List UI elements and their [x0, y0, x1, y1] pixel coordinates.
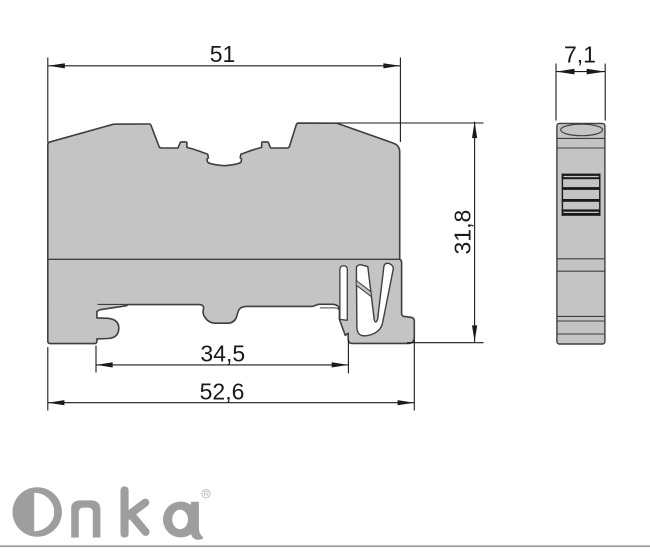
svg-text:34,5: 34,5 [200, 341, 245, 367]
svg-text:52,6: 52,6 [200, 379, 245, 405]
svg-text:31,8: 31,8 [449, 210, 475, 255]
svg-text:7,1: 7,1 [564, 42, 596, 68]
svg-text:51: 51 [210, 41, 236, 67]
